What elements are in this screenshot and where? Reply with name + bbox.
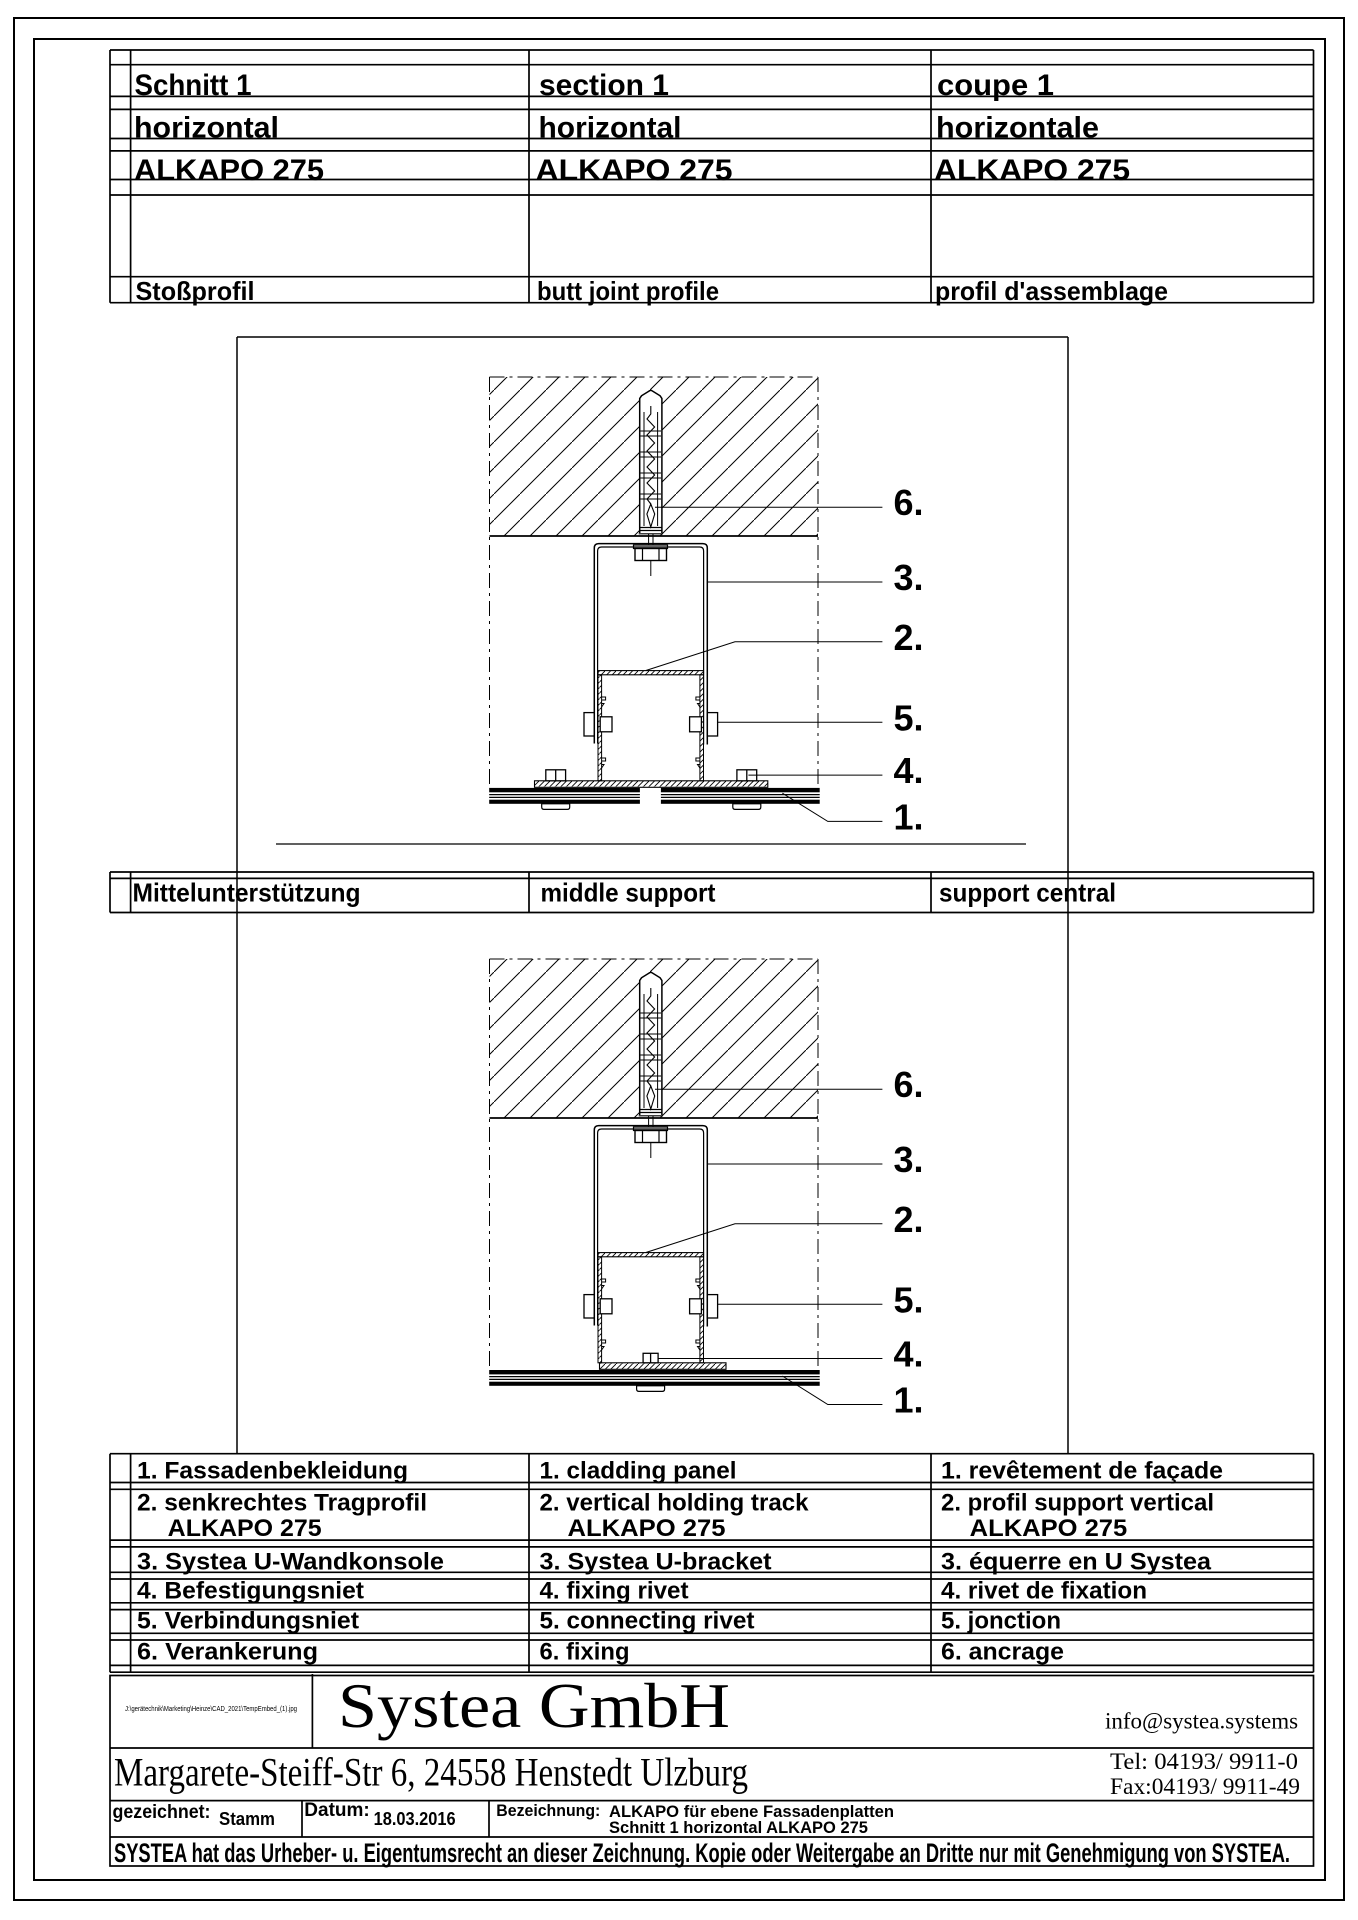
svg-text:1. revêtement de façade: 1. revêtement de façade — [941, 1458, 1223, 1485]
svg-text:4.: 4. — [894, 1334, 924, 1375]
svg-text:horizontale: horizontale — [936, 112, 1099, 145]
svg-text:support central: support central — [939, 878, 1116, 908]
svg-text:horizontal: horizontal — [134, 112, 279, 145]
svg-text:4. fixing rivet: 4. fixing rivet — [540, 1578, 689, 1605]
svg-text:horizontal: horizontal — [539, 112, 682, 145]
svg-text:1.: 1. — [894, 797, 924, 838]
svg-text:3.: 3. — [894, 557, 924, 598]
svg-text:18.03.2016: 18.03.2016 — [374, 1809, 456, 1829]
svg-text:4. rivet de fixation: 4. rivet de fixation — [941, 1578, 1147, 1605]
svg-text:1. cladding panel: 1. cladding panel — [540, 1458, 737, 1485]
svg-text:ALKAPO 275: ALKAPO 275 — [134, 154, 324, 187]
svg-text:ALKAPO 275: ALKAPO 275 — [536, 154, 733, 187]
svg-text:SYSTEA hat das Urheber- u. Eig: SYSTEA hat das Urheber- u. Eigentumsrech… — [114, 1838, 1290, 1868]
svg-text:6. ancrage: 6. ancrage — [941, 1639, 1064, 1666]
svg-text:J:\gerätechnik\Marketing\Heinz: J:\gerätechnik\Marketing\Heinze\CAD_2021… — [125, 1706, 297, 1713]
svg-text:4.: 4. — [894, 750, 924, 791]
svg-text:Bezeichnung:: Bezeichnung: — [496, 1801, 600, 1820]
svg-text:info@systea.systems: info@systea.systems — [1105, 1709, 1298, 1734]
svg-text:6. Verankerung: 6. Verankerung — [137, 1639, 318, 1666]
svg-text:3. Systea U-Wandkonsole: 3. Systea U-Wandkonsole — [137, 1549, 444, 1576]
svg-text:coupe 1: coupe 1 — [937, 69, 1054, 102]
svg-text:Stoßprofil: Stoßprofil — [136, 276, 255, 306]
svg-text:1.: 1. — [894, 1380, 924, 1421]
svg-text:Mittelunterstützung: Mittelunterstützung — [133, 878, 361, 908]
svg-text:5. jonction: 5. jonction — [941, 1608, 1061, 1635]
svg-text:Tel: 04193/ 9911-0: Tel: 04193/ 9911-0 — [1110, 1749, 1298, 1774]
svg-text:3. Systea U-bracket: 3. Systea U-bracket — [540, 1549, 772, 1576]
svg-text:profil d'assemblage: profil d'assemblage — [935, 276, 1168, 306]
svg-text:Margarete-Steiff-Str 6, 24558: Margarete-Steiff-Str 6, 24558 Henstedt U… — [114, 1750, 748, 1795]
svg-text:5. Verbindungsniet: 5. Verbindungsniet — [137, 1608, 359, 1635]
svg-text:2.: 2. — [894, 617, 924, 658]
svg-text:Schnitt 1 horizontal ALKAPO 2: Schnitt 1 horizontal ALKAPO 275 — [609, 1818, 868, 1837]
svg-text:ALKAPO 275: ALKAPO 275 — [568, 1515, 726, 1542]
svg-text:2. senkrechtes Tragprofil: 2. senkrechtes Tragprofil — [137, 1490, 427, 1517]
svg-text:middle support: middle support — [541, 878, 716, 908]
svg-text:Fax:04193/ 9911-49: Fax:04193/ 9911-49 — [1110, 1774, 1300, 1799]
svg-text:ALKAPO 275: ALKAPO 275 — [970, 1515, 1127, 1542]
svg-text:ALKAPO 275: ALKAPO 275 — [934, 154, 1130, 187]
svg-text:3. équerre en U Systea: 3. équerre en U Systea — [941, 1549, 1212, 1576]
svg-text:5. connecting rivet: 5. connecting rivet — [540, 1608, 755, 1635]
svg-text:gezeichnet:: gezeichnet: — [113, 1802, 211, 1823]
svg-text:ALKAPO 275: ALKAPO 275 — [168, 1515, 322, 1542]
svg-text:2. vertical holding track: 2. vertical holding track — [540, 1490, 810, 1517]
svg-text:5.: 5. — [894, 697, 924, 738]
svg-text:butt joint profile: butt joint profile — [537, 276, 719, 306]
svg-text:1. Fassadenbekleidung: 1. Fassadenbekleidung — [137, 1458, 408, 1485]
svg-text:Systea GmbH: Systea GmbH — [338, 1670, 730, 1741]
svg-text:Datum:: Datum: — [304, 1800, 369, 1821]
svg-text:6.: 6. — [894, 482, 924, 523]
svg-text:Stamm: Stamm — [219, 1809, 275, 1829]
svg-text:Schnitt 1: Schnitt 1 — [135, 69, 252, 102]
svg-text:2. profil support vertical: 2. profil support vertical — [941, 1490, 1214, 1517]
svg-text:section 1: section 1 — [539, 69, 669, 102]
svg-text:4. Befestigungsniet: 4. Befestigungsniet — [137, 1578, 364, 1605]
svg-text:6. fixing: 6. fixing — [540, 1639, 630, 1666]
